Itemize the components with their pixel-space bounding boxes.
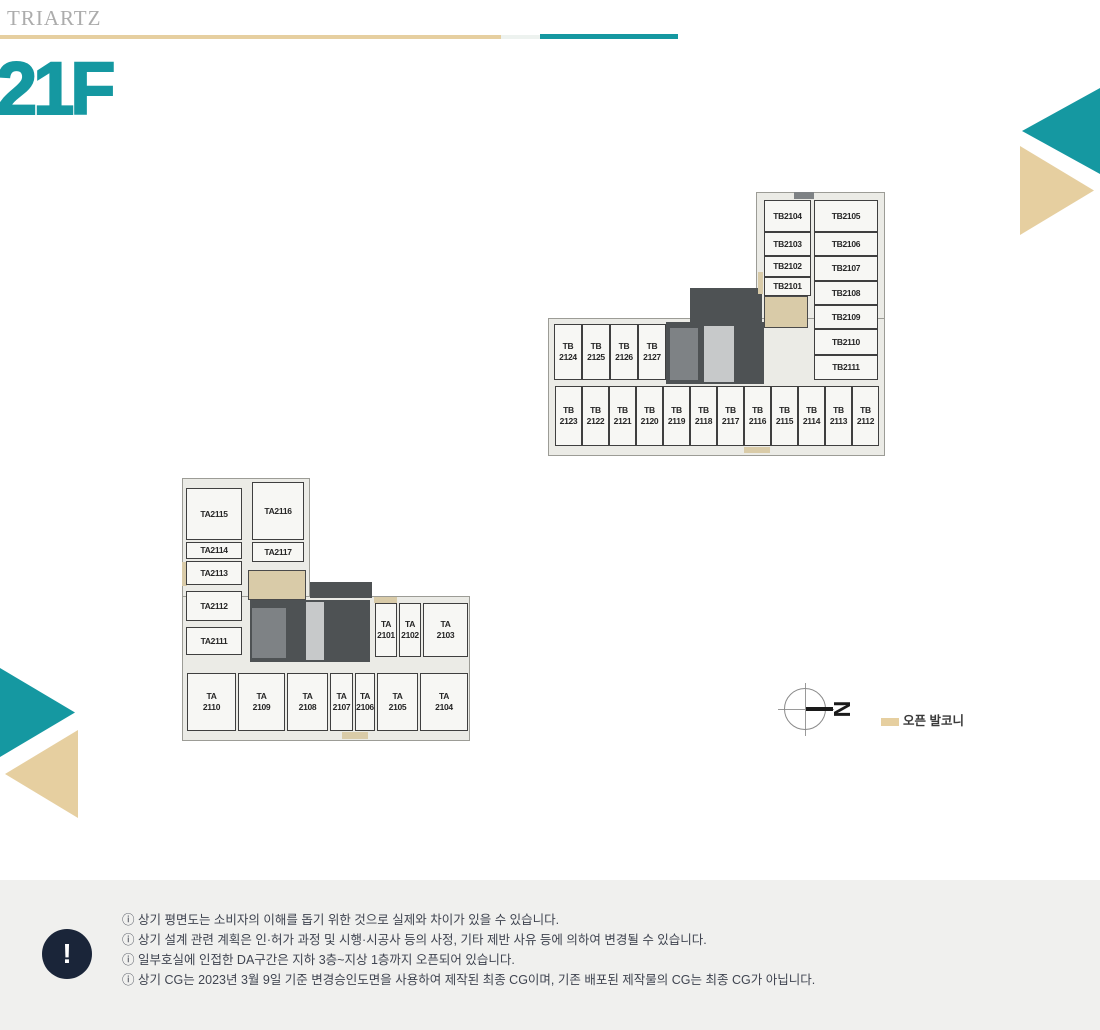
- core-block: [670, 328, 698, 380]
- unit-tb2118: TB 2118: [690, 386, 717, 446]
- unit-tb2104: TB2104: [764, 200, 811, 232]
- unit-tb2107: TB2107: [814, 256, 878, 281]
- unit-ta2115: TA2115: [186, 488, 242, 540]
- unit-tb2120: TB 2120: [636, 386, 663, 446]
- open-balcony-marker: [744, 447, 770, 453]
- unit-ta2110: TA 2110: [187, 673, 236, 731]
- elevator-lobby: [306, 602, 324, 660]
- open-balcony-area: [248, 570, 306, 600]
- unit-tb2106: TB2106: [814, 232, 878, 256]
- open-balcony-legend-swatch: [881, 718, 899, 726]
- unit-tb2115: TB 2115: [771, 386, 798, 446]
- north-indicator: N: [830, 697, 854, 721]
- unit-tb2122: TB 2122: [582, 386, 609, 446]
- unit-tb2101: TB2101: [764, 277, 811, 296]
- unit-tb2126: TB 2126: [610, 324, 638, 380]
- unit-ta2105: TA 2105: [377, 673, 418, 731]
- notice-panel: ! ⓘ 상기 평면도는 소비자의 이해를 돕기 위한 것으로 실제와 차이가 있…: [0, 880, 1100, 1030]
- unit-tb2116: TB 2116: [744, 386, 771, 446]
- unit-ta2113: TA2113: [186, 561, 242, 585]
- notice-line: ⓘ 일부호실에 인접한 DA구간은 지하 3층~지상 1층까지 오픈되어 있습니…: [122, 954, 815, 967]
- header-rule-gap: [501, 35, 540, 39]
- unit-ta2116: TA2116: [252, 482, 304, 540]
- floor-plan-ta: TA2115 TA2114 TA2113 TA2112 TA2111 TA211…: [182, 478, 475, 741]
- alert-icon: !: [42, 929, 92, 979]
- unit-ta2101: TA 2101: [375, 603, 397, 657]
- unit-ta2117: TA2117: [252, 542, 304, 562]
- unit-tb2108: TB2108: [814, 281, 878, 305]
- page: TRIARTZ 21F TB2104 TB2103 TB2102 TB2101 …: [0, 0, 1100, 1030]
- unit-tb2125: TB 2125: [582, 324, 610, 380]
- open-balcony-legend-label: 오픈 발코니: [903, 710, 964, 729]
- unit-tb2111: TB2111: [814, 355, 878, 380]
- unit-ta2111: TA2111: [186, 627, 242, 655]
- unit-tb2103: TB2103: [764, 232, 811, 256]
- unit-tb2123: TB 2123: [555, 386, 582, 446]
- unit-tb2113: TB 2113: [825, 386, 852, 446]
- unit-ta2112: TA2112: [186, 591, 242, 621]
- unit-tb2102: TB2102: [764, 256, 811, 277]
- open-balcony-marker: [758, 272, 763, 294]
- core-block: [252, 608, 286, 658]
- unit-tb2109: TB2109: [814, 305, 878, 329]
- notice-line: ⓘ 상기 설계 관련 계획은 인·허가 과정 및 시행·시공사 등의 사정, 기…: [122, 934, 815, 947]
- unit-ta2106: TA 2106: [355, 673, 375, 731]
- notice-list: ⓘ 상기 평면도는 소비자의 이해를 돕기 위한 것으로 실제와 차이가 있을 …: [122, 914, 815, 987]
- core-block: [794, 192, 814, 199]
- notice-line: ⓘ 상기 평면도는 소비자의 이해를 돕기 위한 것으로 실제와 차이가 있을 …: [122, 914, 815, 927]
- open-balcony-marker: [342, 732, 368, 739]
- notice-line: ⓘ 상기 CG는 2023년 3월 9일 기준 변경승인도면을 사용하여 제작된…: [122, 974, 815, 987]
- brand-logo: TRIARTZ: [7, 6, 101, 31]
- unit-tb2114: TB 2114: [798, 386, 825, 446]
- unit-tb2117: TB 2117: [717, 386, 744, 446]
- floor-plan-tb: TB2104 TB2103 TB2102 TB2101 TB2105 TB210…: [548, 192, 885, 456]
- core-block: [690, 288, 762, 322]
- unit-ta2104: TA 2104: [420, 673, 468, 731]
- unit-tb2124: TB 2124: [554, 324, 582, 380]
- floor-title: 21F: [0, 46, 112, 131]
- header-rule-beige: [0, 35, 501, 39]
- unit-ta2108: TA 2108: [287, 673, 328, 731]
- unit-tb2110: TB2110: [814, 329, 878, 355]
- unit-ta2107: TA 2107: [330, 673, 353, 731]
- open-balcony-area: [764, 296, 808, 328]
- unit-ta2114: TA2114: [186, 542, 242, 559]
- core-block: [310, 582, 372, 598]
- unit-ta2109: TA 2109: [238, 673, 285, 731]
- unit-ta2103: TA 2103: [423, 603, 468, 657]
- elevator-lobby: [704, 326, 734, 382]
- header-rule-teal: [540, 34, 678, 39]
- unit-tb2105: TB2105: [814, 200, 878, 232]
- unit-tb2112: TB 2112: [852, 386, 879, 446]
- unit-tb2121: TB 2121: [609, 386, 636, 446]
- unit-ta2102: TA 2102: [399, 603, 421, 657]
- unit-tb2127: TB 2127: [638, 324, 666, 380]
- unit-tb2119: TB 2119: [663, 386, 690, 446]
